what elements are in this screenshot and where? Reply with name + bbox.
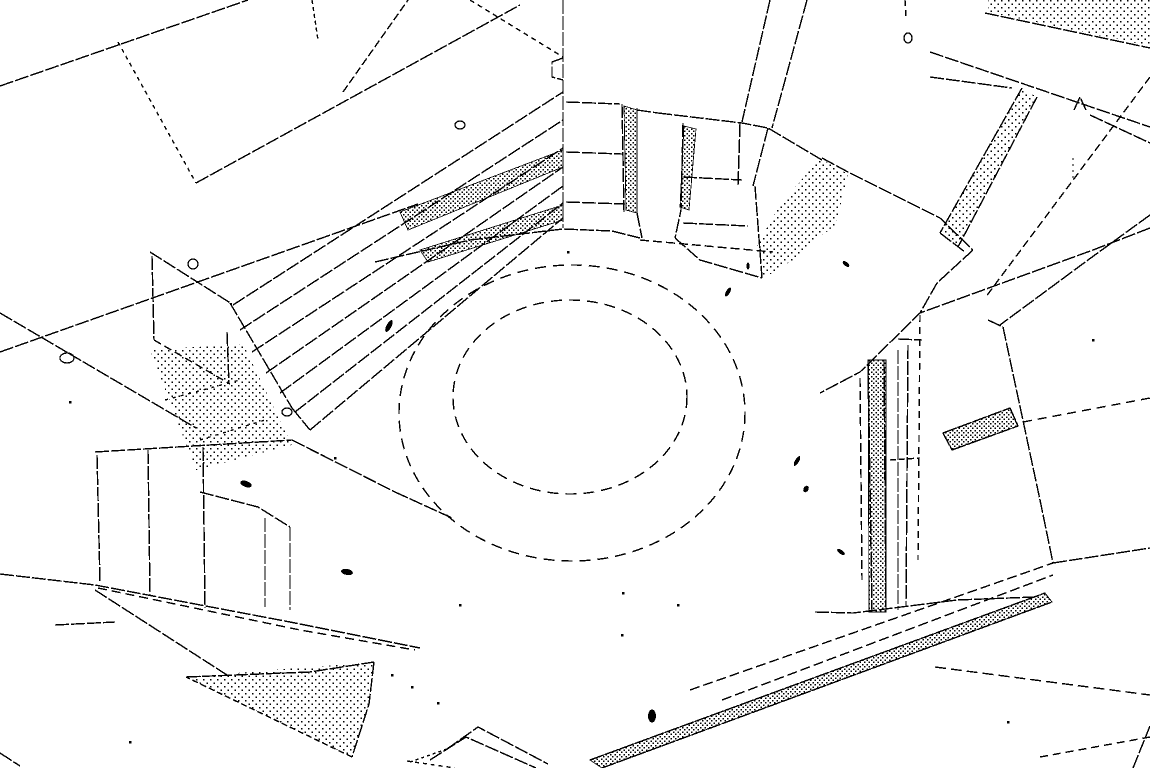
edge-line bbox=[906, 345, 908, 606]
edge-line bbox=[566, 202, 625, 204]
stipple-patch bbox=[988, 0, 1150, 46]
arena-drawing bbox=[0, 0, 1150, 768]
edge-line bbox=[755, 186, 762, 278]
edge-line bbox=[152, 256, 154, 340]
speck bbox=[621, 634, 624, 637]
speck bbox=[459, 604, 462, 607]
edge-line bbox=[312, 0, 318, 40]
edge-line bbox=[958, 97, 1037, 247]
speck bbox=[334, 457, 337, 460]
edge-line bbox=[0, 0, 248, 86]
speck bbox=[677, 604, 680, 607]
edge-line bbox=[905, 0, 906, 18]
edge-line bbox=[55, 622, 115, 625]
speck bbox=[391, 674, 394, 677]
edge-line bbox=[292, 408, 310, 430]
arena-ring bbox=[399, 265, 745, 561]
knob-mark bbox=[60, 353, 74, 363]
edge-line bbox=[640, 240, 773, 252]
figure-mark bbox=[341, 568, 354, 576]
hatched-strips bbox=[400, 106, 1052, 768]
edge-line bbox=[675, 238, 762, 278]
figure-mark bbox=[842, 260, 851, 268]
edge-line bbox=[552, 58, 563, 80]
speck bbox=[437, 702, 440, 705]
edge-line bbox=[1040, 737, 1150, 757]
edge-line bbox=[407, 761, 455, 768]
arena-ring bbox=[453, 300, 687, 494]
edge-line bbox=[395, 492, 452, 518]
edge-line bbox=[252, 148, 563, 352]
speck bbox=[411, 686, 414, 689]
hatch-strip bbox=[624, 106, 637, 213]
edge-line bbox=[742, 0, 770, 122]
edge-line bbox=[622, 104, 624, 212]
edge-line bbox=[470, 0, 563, 57]
speck bbox=[1092, 339, 1095, 342]
edge-line bbox=[722, 575, 1053, 700]
knob-mark bbox=[282, 408, 292, 416]
edge-line bbox=[683, 223, 748, 226]
speck bbox=[129, 741, 132, 744]
knob-mark bbox=[188, 259, 198, 269]
stipple-patch bbox=[757, 158, 848, 278]
figure-mark bbox=[724, 287, 732, 298]
speck bbox=[1007, 721, 1010, 724]
edge-line bbox=[820, 250, 973, 393]
edge-line bbox=[118, 42, 196, 183]
figure-mark bbox=[747, 263, 750, 270]
edge-line bbox=[940, 88, 1022, 233]
figure-mark bbox=[793, 455, 802, 467]
edge-line bbox=[196, 5, 520, 183]
stipple-patch bbox=[940, 88, 1037, 247]
hatch-strip bbox=[590, 593, 1052, 768]
edge-line bbox=[233, 92, 563, 305]
edge-line bbox=[930, 77, 1012, 88]
speck bbox=[567, 251, 570, 254]
center-rings bbox=[399, 265, 745, 561]
edge-line bbox=[918, 315, 920, 560]
edge-line bbox=[738, 123, 740, 186]
edge-line bbox=[203, 447, 205, 608]
edge-line bbox=[97, 455, 100, 583]
edge-line bbox=[292, 440, 395, 492]
edge-line bbox=[1000, 215, 1150, 325]
knob-mark bbox=[904, 33, 912, 43]
edge-line bbox=[1133, 726, 1150, 768]
edge-line bbox=[935, 667, 1150, 695]
edge-line bbox=[1023, 398, 1150, 422]
edge-line bbox=[860, 378, 862, 580]
edge-line bbox=[200, 492, 290, 527]
figure-mark bbox=[802, 485, 810, 494]
edge-line bbox=[590, 593, 1045, 760]
figure-mark bbox=[648, 710, 656, 723]
edge-line bbox=[1053, 548, 1150, 563]
edge-line bbox=[566, 102, 620, 104]
edge-line bbox=[148, 450, 150, 595]
edge-line bbox=[675, 123, 683, 238]
edge-line bbox=[430, 737, 536, 768]
edge-line bbox=[1074, 97, 1086, 110]
edge-line bbox=[753, 128, 768, 186]
figure-mark bbox=[836, 548, 846, 556]
edge-line bbox=[1003, 327, 1053, 563]
edge-line bbox=[637, 110, 658, 113]
speck bbox=[622, 592, 625, 595]
knob-mark bbox=[455, 121, 465, 129]
edge-line bbox=[447, 727, 548, 764]
figure-mark bbox=[384, 319, 395, 333]
edge-line bbox=[0, 753, 20, 766]
edge-line bbox=[410, 749, 447, 762]
edge-line bbox=[772, 0, 807, 128]
wireframe-scene bbox=[0, 0, 1150, 768]
edge-line bbox=[566, 152, 622, 154]
figure-mark bbox=[239, 479, 252, 489]
edge-line bbox=[637, 213, 642, 238]
edge-line bbox=[95, 590, 227, 675]
figure-marks bbox=[239, 260, 850, 723]
edge-line bbox=[890, 458, 920, 460]
edge-line bbox=[343, 0, 408, 92]
stipple-patch bbox=[150, 344, 292, 470]
edge-line bbox=[988, 320, 1003, 327]
edge-line bbox=[1090, 115, 1150, 143]
speck bbox=[69, 401, 72, 404]
specks bbox=[69, 251, 1095, 744]
edge-line bbox=[930, 52, 1150, 127]
edge-line bbox=[898, 339, 922, 340]
edge-line bbox=[98, 588, 415, 650]
